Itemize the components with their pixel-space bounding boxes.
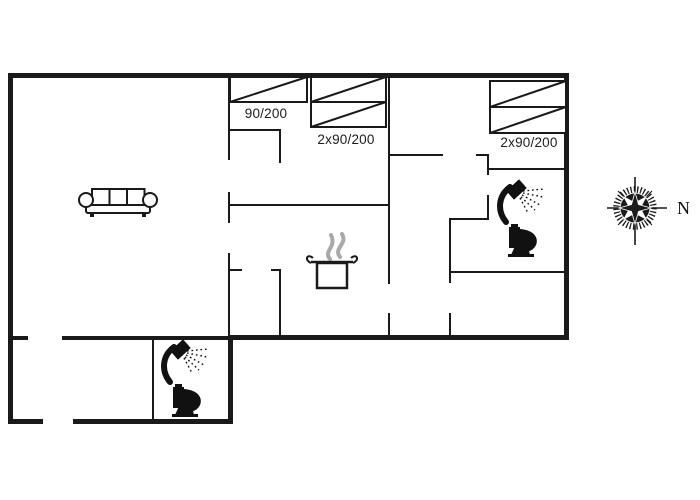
bed-size-label: 2x90/200: [317, 132, 374, 147]
compass-north-label: N: [677, 198, 690, 219]
bathroom-icons: [164, 340, 208, 417]
bathroom-icons: [500, 180, 544, 257]
floor-plan-drawing: [0, 0, 700, 500]
toilet-icon: [172, 384, 201, 417]
exterior-walls: [8, 73, 569, 424]
bed-symbols: [230, 77, 566, 133]
bed-size-label: 2x90/200: [500, 135, 557, 150]
bed-size-label: 90/200: [245, 106, 288, 121]
bed-icon: [230, 77, 307, 102]
toilet-icon: [508, 224, 537, 257]
floor-plan-page: 90/200 2x90/200 2x90/200 N: [0, 0, 700, 500]
shower-icon: [164, 340, 208, 382]
compass-rose-icon: [607, 177, 667, 245]
bed-icon: [490, 81, 566, 133]
sofa-icon: [79, 189, 157, 217]
shower-icon: [500, 180, 544, 222]
bed-icon: [311, 77, 386, 127]
cooking-pot-icon: [307, 234, 357, 288]
